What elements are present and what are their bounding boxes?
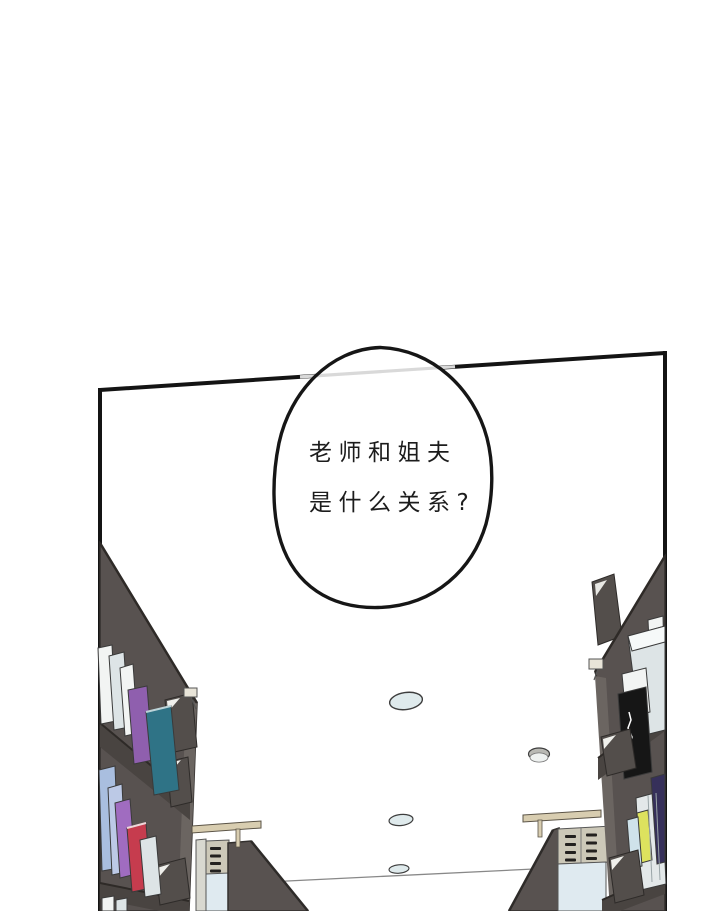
ceiling-lights xyxy=(388,690,549,874)
speech-bubble xyxy=(274,348,492,608)
book-row-cut xyxy=(102,896,127,911)
ceiling-light xyxy=(388,813,413,826)
comic-page: 老师和姐夫 是什么关系? xyxy=(0,0,720,911)
book-spine xyxy=(102,896,114,911)
railing-post xyxy=(538,820,542,837)
book-cart-right xyxy=(509,826,612,911)
cart-lower-panel xyxy=(558,862,606,911)
ceiling-light xyxy=(388,690,423,711)
railing-bar xyxy=(523,810,601,822)
ceiling-light xyxy=(389,864,410,874)
speech-bubble-line1: 老师和姐夫 xyxy=(309,442,457,465)
speech-bubble-line2: 是什么关系? xyxy=(309,492,475,515)
bookshelf-left xyxy=(98,543,197,911)
shelf-wedge xyxy=(228,841,308,911)
smoke-detector xyxy=(529,748,550,762)
cart-side-strip xyxy=(196,839,206,911)
book-cart-left xyxy=(196,839,308,911)
railing-bar xyxy=(192,821,261,833)
bookend xyxy=(601,729,636,776)
book-spine xyxy=(116,898,127,911)
bookend xyxy=(609,850,644,903)
railing-post xyxy=(236,829,240,847)
